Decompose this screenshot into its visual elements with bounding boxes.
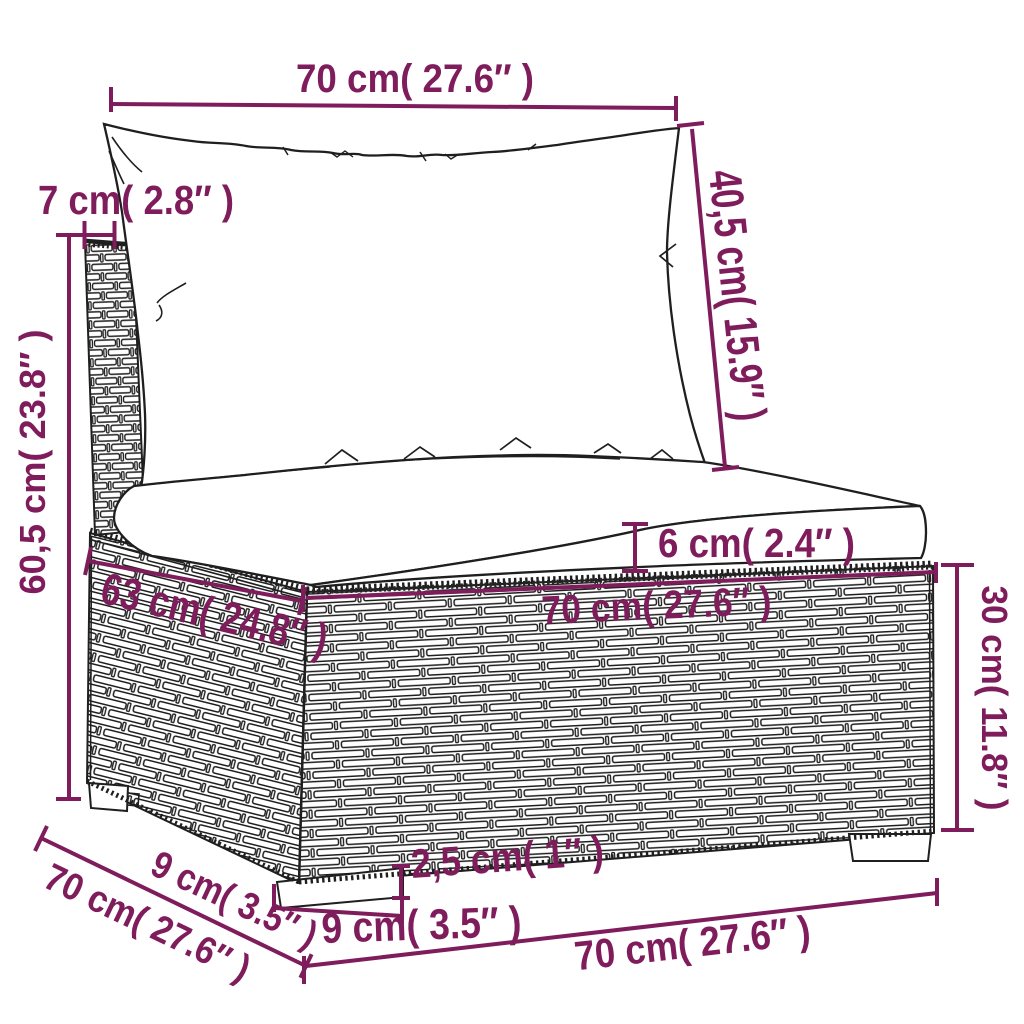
svg-text:60,5 cm( 23.8″ ): 60,5 cm( 23.8″ ): [12, 330, 53, 595]
svg-text:70 cm( 27.6″ ): 70 cm( 27.6″ ): [296, 57, 534, 101]
svg-text:70 cm( 27.6″ ): 70 cm( 27.6″ ): [572, 907, 813, 980]
svg-text:30 cm( 11.8″ ): 30 cm( 11.8″ ): [974, 586, 1015, 811]
svg-text:7 cm( 2.8″ ): 7 cm( 2.8″ ): [38, 177, 234, 223]
svg-text:40,5 cm( 15.9″ ): 40,5 cm( 15.9″ ): [699, 167, 777, 423]
svg-text:6 cm( 2.4″ ): 6 cm( 2.4″ ): [658, 520, 855, 566]
